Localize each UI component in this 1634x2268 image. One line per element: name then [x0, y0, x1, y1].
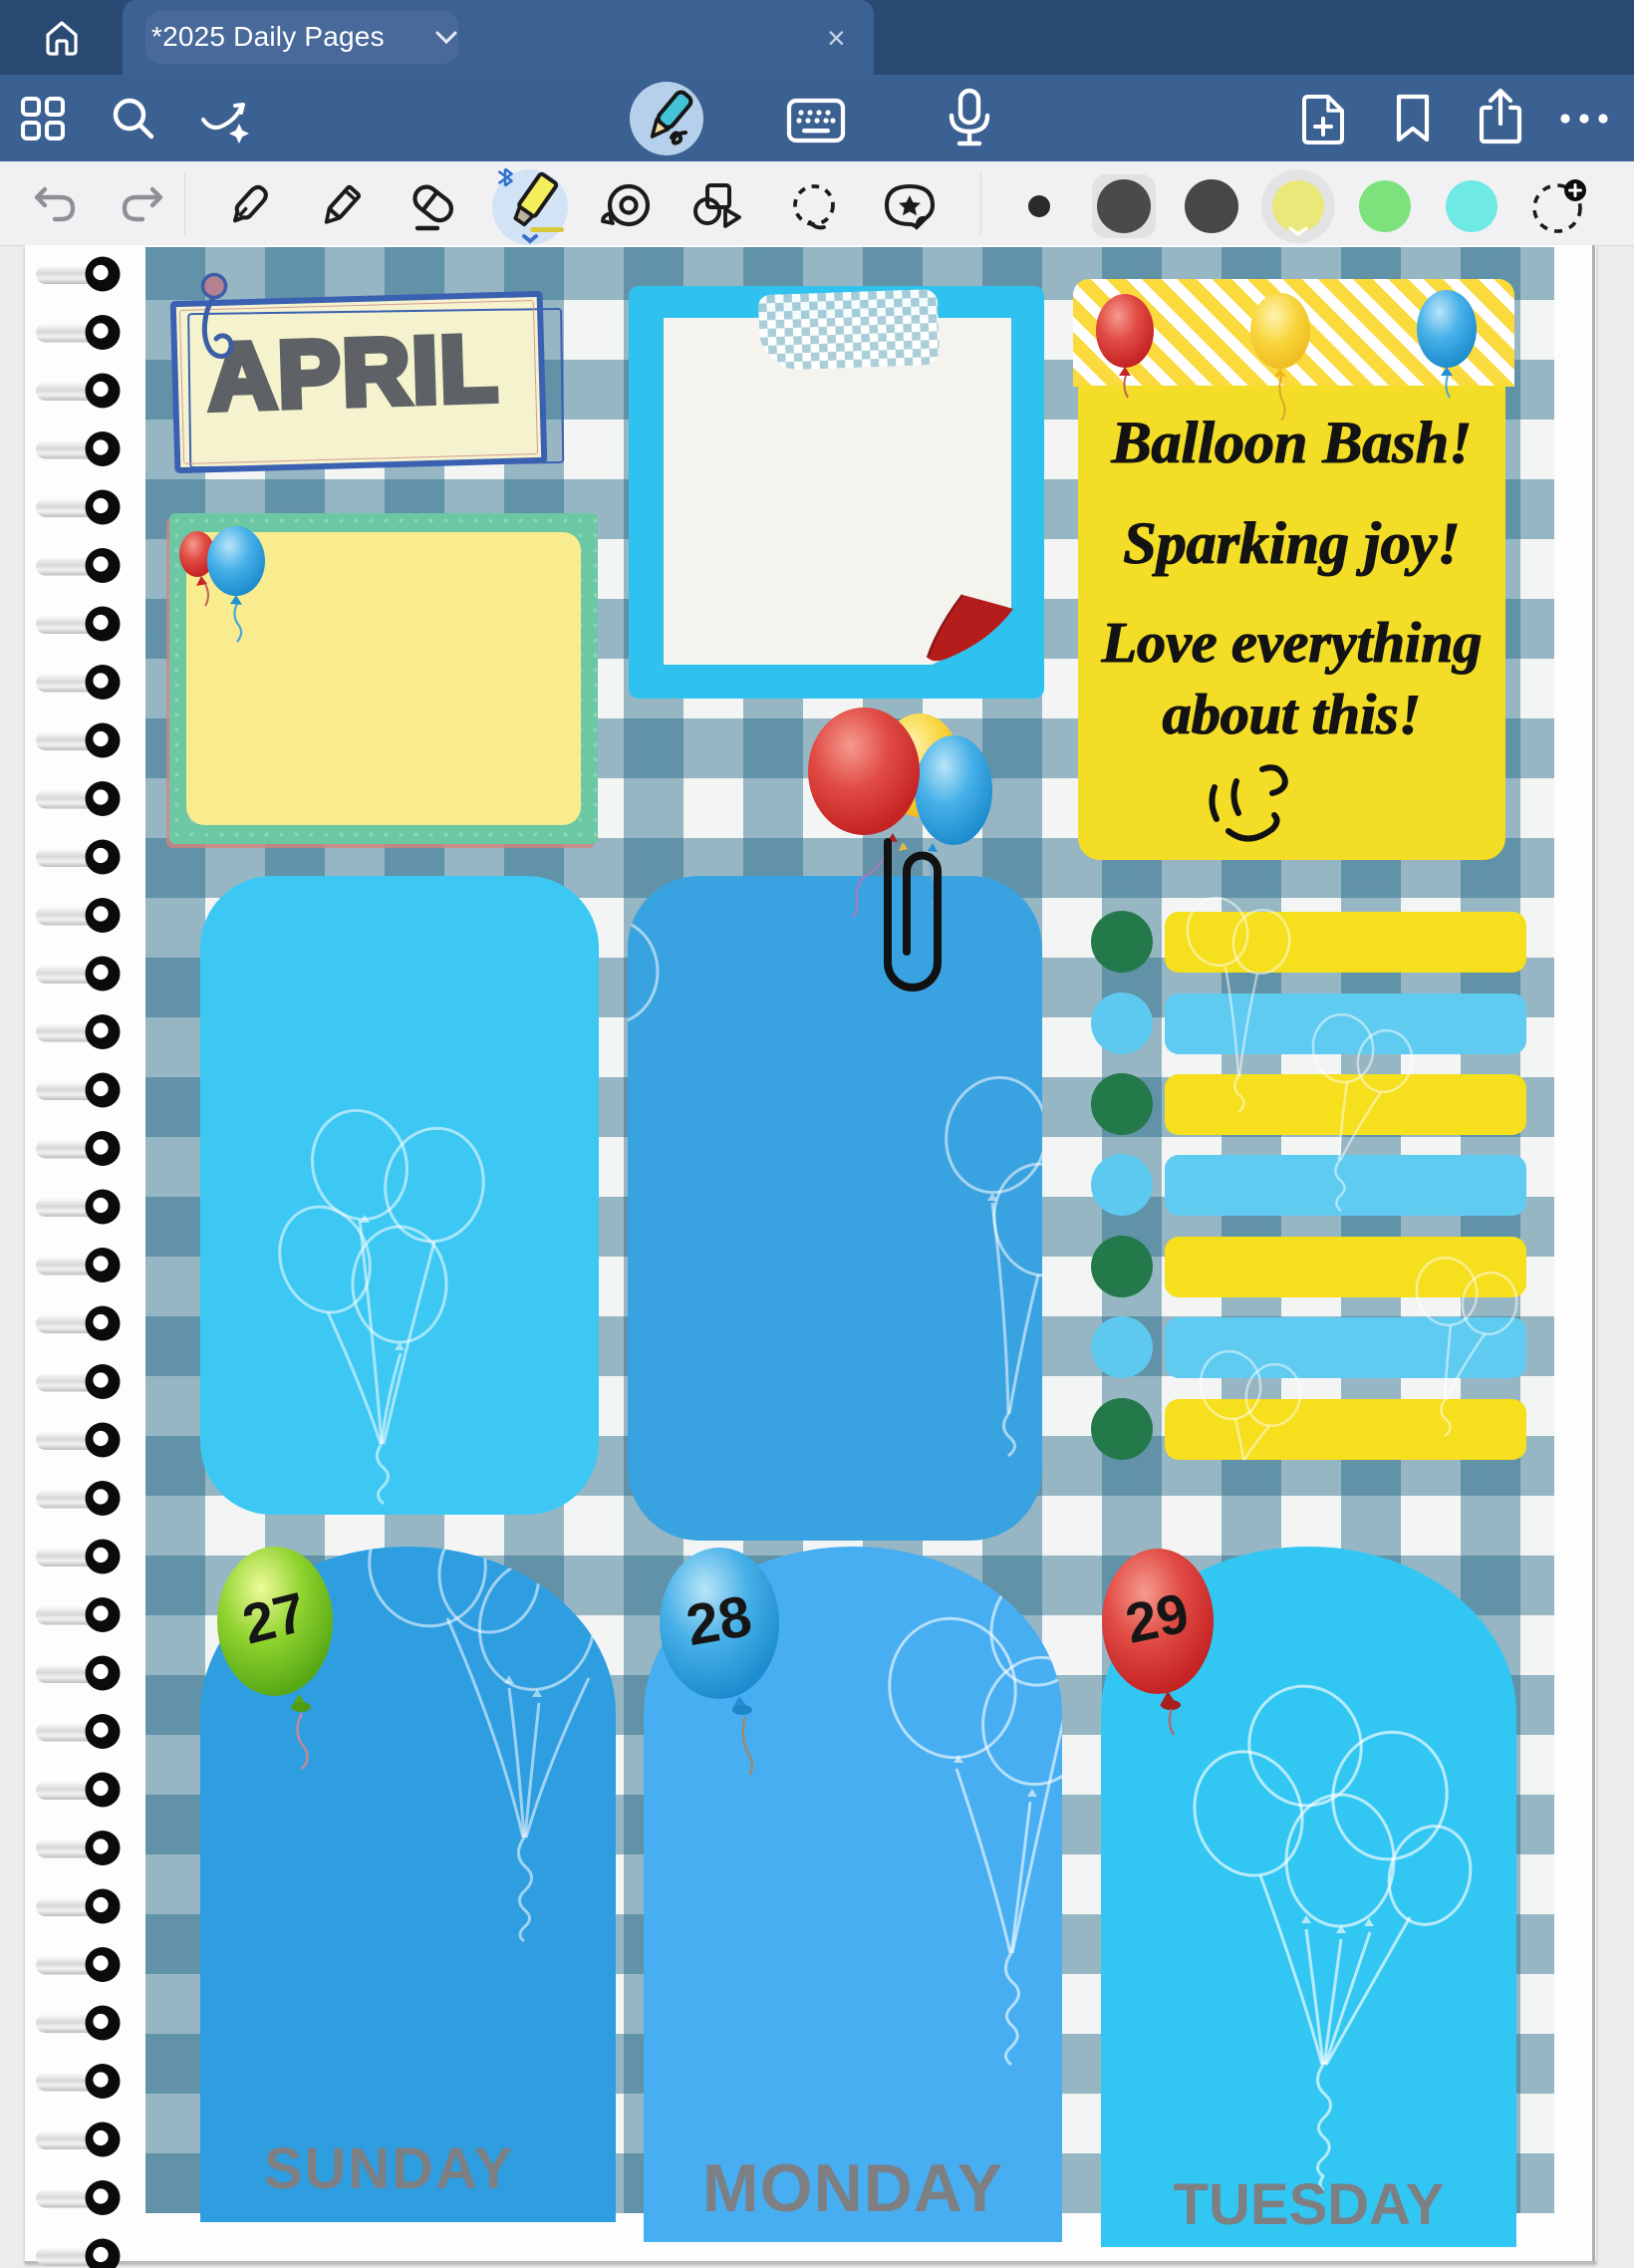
- svg-text:28: 28: [681, 1583, 756, 1658]
- svg-text:29: 29: [1120, 1580, 1194, 1655]
